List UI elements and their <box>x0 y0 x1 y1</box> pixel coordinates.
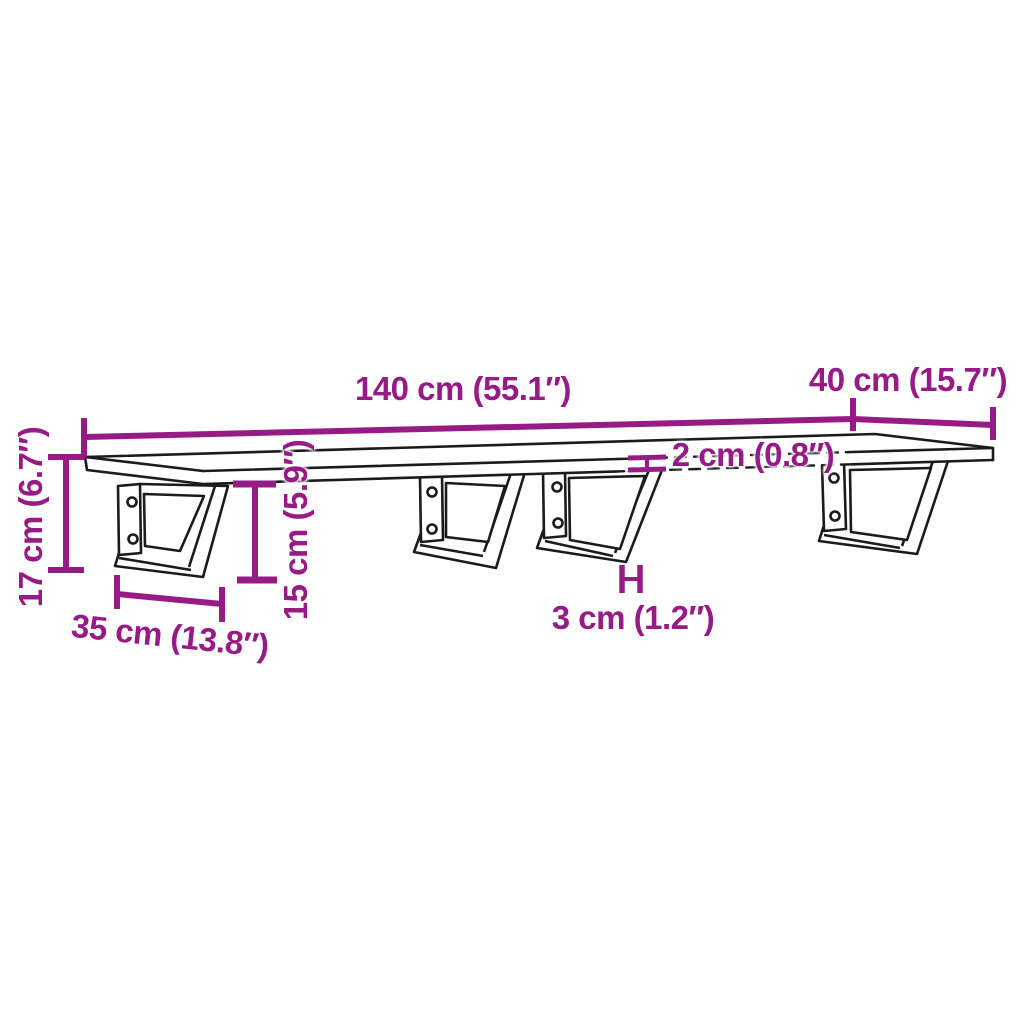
dim-line-bracket-depth <box>117 594 222 604</box>
dim-label-board-depth: 40 cm (15.7″) <box>809 361 1007 399</box>
bracket-2 <box>414 472 525 568</box>
dim-label-bracket-bar-width: 3 cm (1.2″) <box>552 599 715 637</box>
dim-line-depth <box>853 419 993 425</box>
dim-symbol-bracket-bar <box>622 565 640 593</box>
bracket-4 <box>819 461 948 554</box>
dim-label-overall-height: 17 cm (6.7″) <box>12 427 50 607</box>
dim-label-board-length: 140 cm (55.1″) <box>355 370 571 408</box>
dimension-diagram: 140 cm (55.1″) 40 cm (15.7″) 2 cm (0.8″)… <box>0 0 1024 1024</box>
dim-label-bracket-height: 15 cm (5.9″) <box>277 440 315 620</box>
diagram-line-art <box>0 0 1024 1024</box>
bracket-3 <box>537 470 662 562</box>
bracket-1 <box>115 484 228 577</box>
dim-label-board-thickness: 2 cm (0.8″) <box>672 436 835 474</box>
dim-line-length <box>84 419 853 437</box>
